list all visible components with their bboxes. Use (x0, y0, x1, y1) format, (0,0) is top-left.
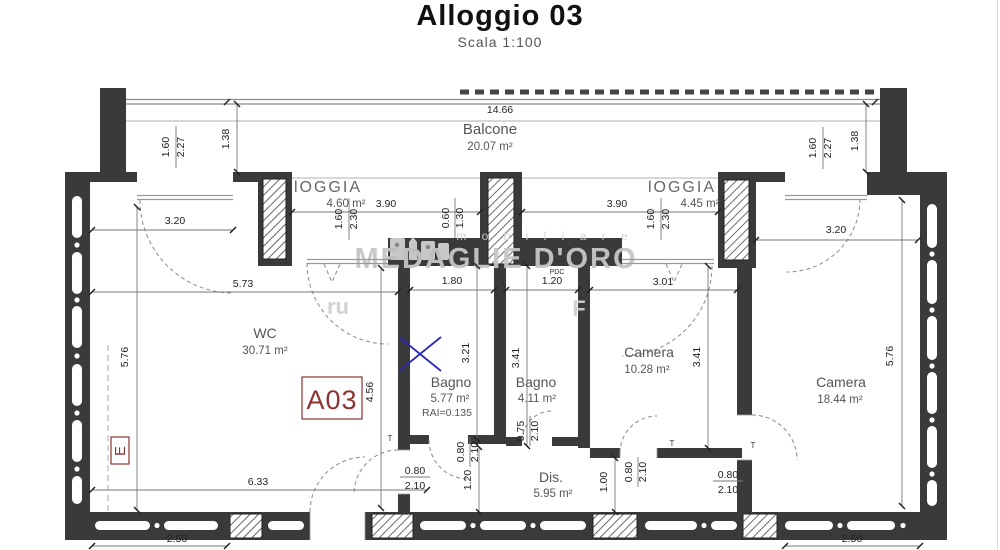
dim-camera1-bottom: 1.00 (598, 472, 610, 493)
wall-bagno1-bagno2 (494, 266, 506, 444)
dim-corridor-width: 1.20 (462, 470, 474, 491)
dim-door-c-h: 2.10 (529, 421, 541, 442)
dim-loggia-left-win-w: 1.60 (333, 209, 345, 230)
camera2-window-swing (787, 199, 860, 272)
unit-label: A03 (306, 385, 357, 415)
floor-plan-canvas: m o b i l i a r e MEDAGLIE D'ORO ru F (0, 0, 1000, 550)
dim-balcony-depth-left: 1.38 (220, 129, 232, 150)
camera1-bottom-wall (590, 448, 620, 458)
dim-pillar-w: 0.60 (440, 208, 452, 229)
room-camera2-area: 18.44 m² (817, 394, 863, 406)
corner-top-right (867, 172, 947, 195)
dim-loggia-right-win-h: 2.30 (660, 209, 672, 230)
annotations-layer: A03 E PDC T T T (108, 269, 756, 512)
dim-bottom-left: 2.50 (167, 533, 188, 545)
dim-pillar-h: 1.30 (454, 208, 466, 229)
dim-door-c-w: 0.75 (515, 421, 527, 442)
watermark: m o b i l i a r e MEDAGLIE D'ORO ru F (327, 229, 638, 321)
dim-win-right-h: 2.27 (822, 138, 834, 159)
room-camera2-name: Camera (816, 374, 866, 390)
dim-door-d-h: 2.10 (637, 462, 649, 483)
dim-camera2-height: 5.76 (884, 346, 896, 367)
dim-bagno2-height: 3.41 (510, 348, 522, 369)
room-loggia-right-name: lOGGIA (648, 179, 716, 196)
dim-bottom-right: 2.50 (842, 533, 863, 545)
wall-bagno2-camera1 (578, 266, 590, 448)
entrance-door-swing (310, 457, 365, 512)
room-balcone-name: Balcone (463, 121, 517, 138)
dim-door-a-h: 2.10 (405, 480, 426, 492)
dim-camera1-width: 3.01 (653, 276, 674, 288)
dim-camera2-window: 3.20 (826, 224, 847, 236)
balcony-stub-right (880, 88, 907, 180)
dim-bagno2-width: 1.20 (542, 275, 563, 287)
room-bagno1-area: 5.77 m² (431, 393, 470, 405)
dim-wc-window: 3.20 (165, 215, 186, 227)
section-label: E (112, 446, 129, 456)
dim-wc-width-top: 5.73 (233, 278, 254, 290)
dim-door-b-h: 2.10 (469, 442, 481, 463)
room-dis-name: Dis. (539, 469, 563, 485)
pdc-label: PDC (550, 269, 565, 276)
dim-door-e-h: 2.10 (718, 484, 739, 496)
room-bagno1-name: Bagno (431, 374, 472, 390)
room-loggia-left-name: lOGGIA (294, 179, 362, 196)
dim-camera1-height: 3.41 (691, 347, 703, 368)
watermark-fragment-left: ru (327, 294, 349, 319)
dim-win-left-h: 2.27 (175, 137, 187, 158)
t-marker-2: T (670, 439, 675, 448)
dim-win-right-w: 1.60 (807, 138, 819, 159)
dim-balcony-depth-right: 1.38 (849, 131, 861, 152)
dim-loggia-left-win-h: 2.30 (348, 209, 360, 230)
bagno1-bottom-wall (398, 435, 429, 444)
dim-door-a-w: 0.80 (405, 465, 426, 477)
loggia-left-window-leaf (324, 264, 340, 282)
t-marker-3: T (751, 441, 756, 450)
bottom-pilaster-4 (743, 514, 777, 538)
room-wc-area: 30.71 m² (242, 345, 288, 357)
wc-dis-door-swing (354, 450, 398, 494)
room-camera1-name: Camera (624, 344, 674, 360)
room-balcone-area: 20.07 m² (467, 141, 513, 153)
t-marker-1: T (388, 434, 393, 443)
dim-wc-height-left: 5.76 (119, 347, 131, 368)
dim-wc-height-mid: 4.56 (364, 382, 376, 403)
dim-wc-width-bottom: 6.33 (248, 476, 269, 488)
dim-balcony-width: 14.66 (487, 104, 513, 116)
balcony-stub-left (100, 88, 126, 180)
room-loggia-left-area: 4.60 m² (327, 198, 366, 210)
wall-wc-bagno1 (398, 266, 410, 450)
floor-plan-page: Alloggio 03 Scala 1:100 (0, 0, 1000, 550)
room-bagno2-name: Bagno (516, 374, 557, 390)
room-wc-name: WC (253, 325, 276, 341)
dim-door-b-w: 0.80 (455, 442, 467, 463)
dim-bagno1-height: 3.21 (460, 343, 472, 364)
bottom-pilaster-2 (372, 514, 413, 538)
dim-win-left-w: 1.60 (160, 137, 172, 158)
room-bagno1-note: RAI=0.135 (422, 407, 472, 419)
room-loggia-right-area: 4.45 m² (681, 198, 720, 210)
bottom-pilaster-3 (593, 514, 637, 538)
dim-loggia-right-win-w: 1.60 (645, 209, 657, 230)
camera1-door-swing (620, 416, 657, 453)
dim-door-d-w: 0.80 (623, 462, 635, 483)
dim-loggia-left-len: 3.90 (376, 198, 397, 210)
watermark-fragment-right: F (572, 296, 585, 321)
bottom-pilaster-1 (230, 514, 262, 538)
wc-window-swing (140, 200, 233, 293)
watermark-brand-small: m o b i l i a r e (456, 229, 633, 243)
dim-door-e-w: 0.80 (718, 469, 739, 481)
room-camera1-area: 10.28 m² (624, 364, 670, 376)
wall-camera1-camera2 (737, 268, 752, 415)
room-bagno2-area: 4.11 m² (518, 393, 556, 405)
camera2-door-swing (752, 415, 797, 460)
dim-hall-opening: 1.80 (442, 275, 463, 287)
watermark-brand-large: MEDAGLIE D'ORO (354, 243, 637, 275)
dim-loggia-right-len: 3.90 (607, 198, 628, 210)
room-dis-area: 5.95 m² (534, 488, 573, 500)
